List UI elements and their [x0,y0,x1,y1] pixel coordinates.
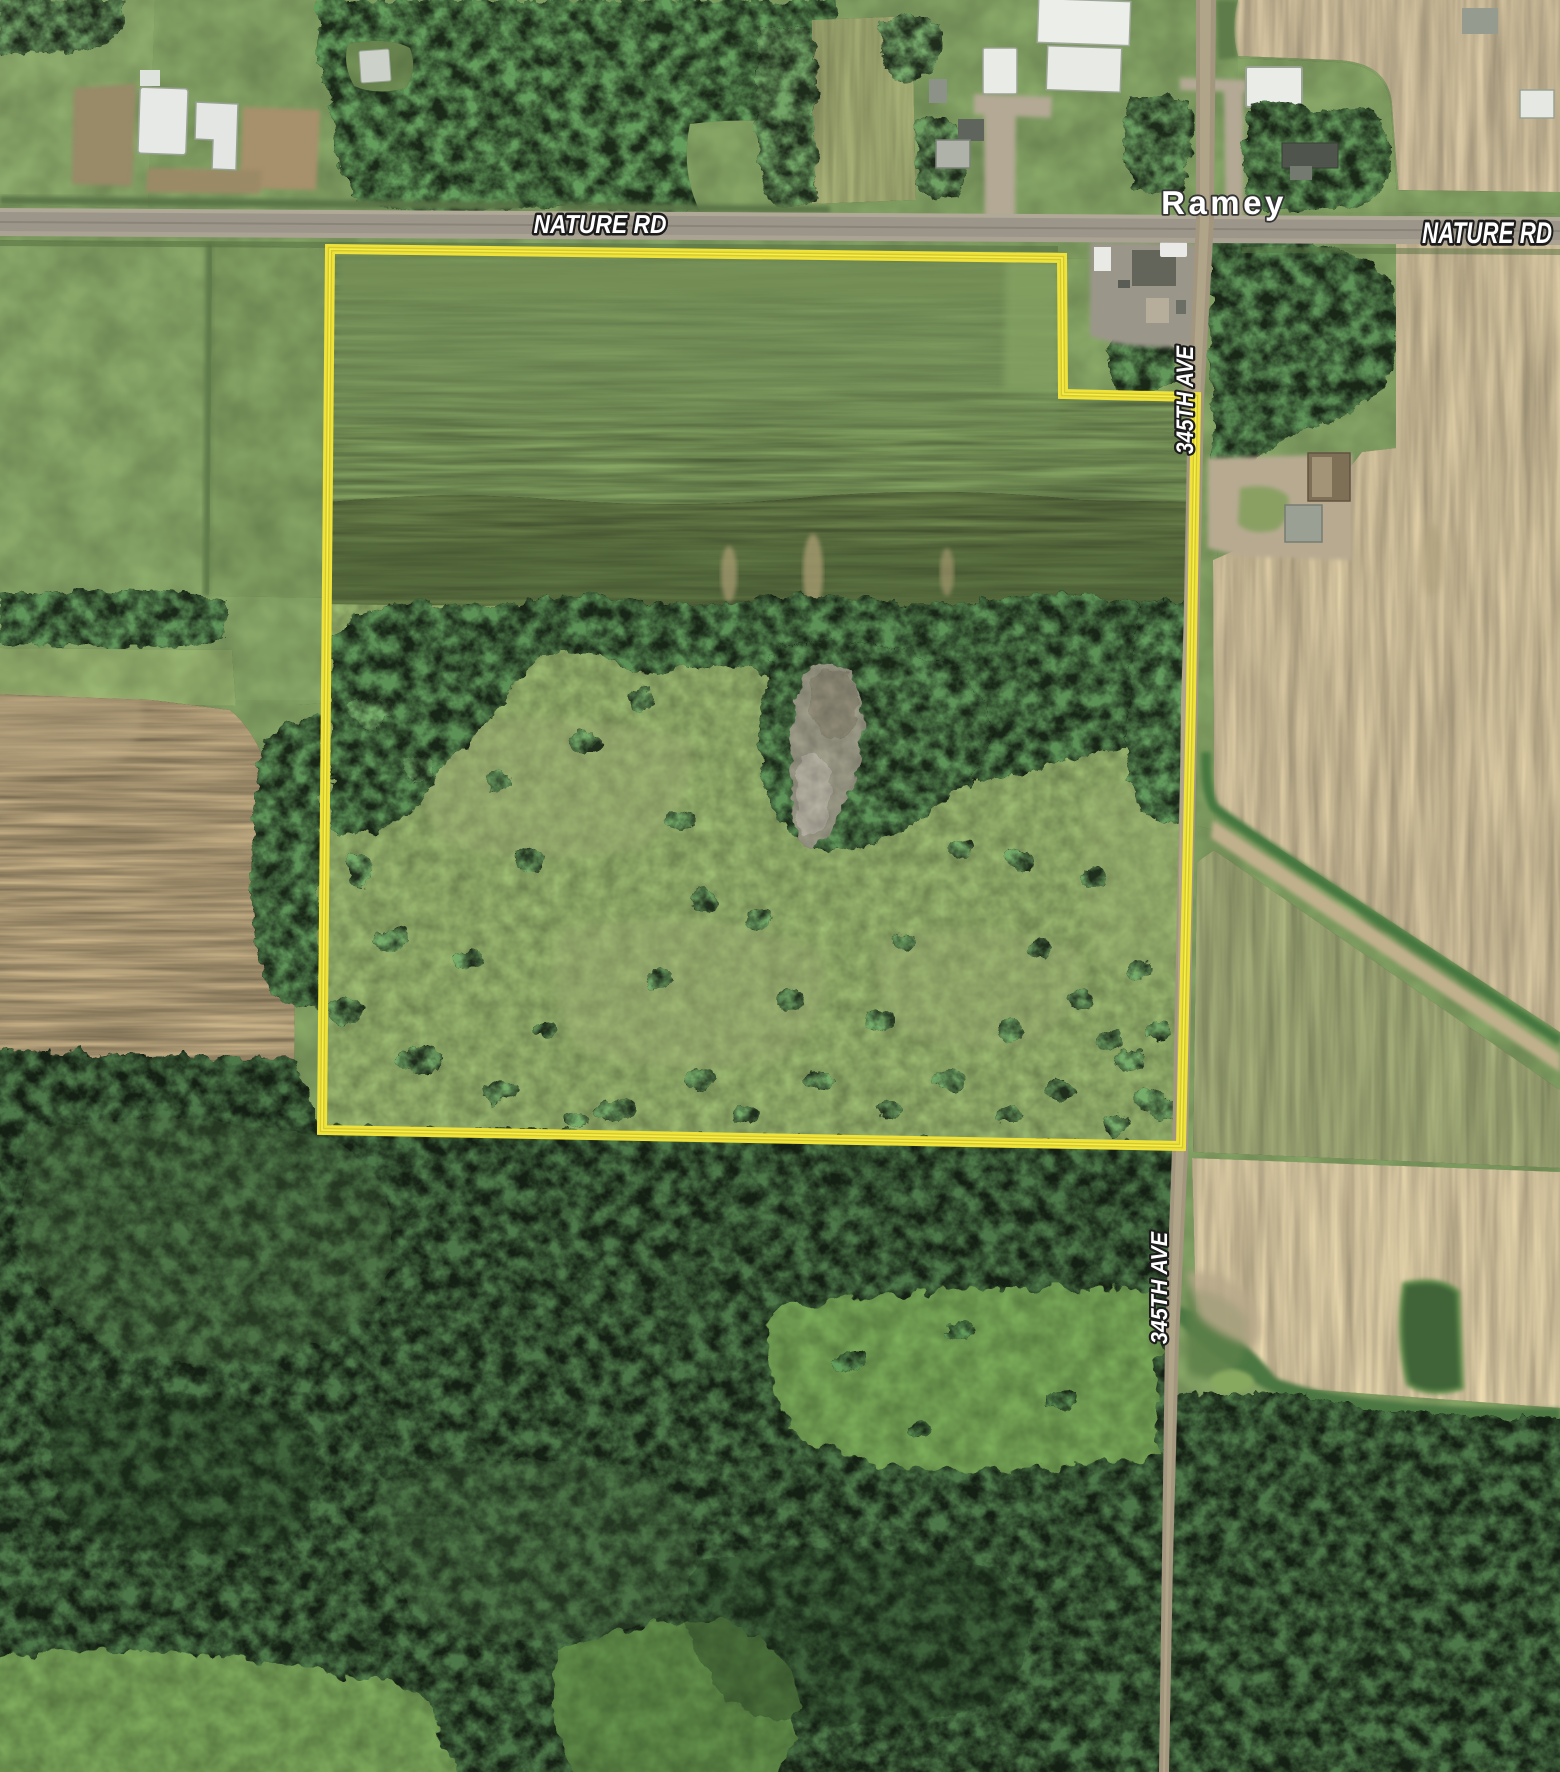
svg-text:NATURE RD: NATURE RD [534,209,667,239]
svg-text:345TH AVE: 345TH AVE [1146,1231,1172,1344]
svg-text:Ramey: Ramey [1161,184,1287,221]
svg-text:NATURE RD: NATURE RD [1422,217,1552,250]
svg-text:345TH AVE: 345TH AVE [1172,345,1199,454]
